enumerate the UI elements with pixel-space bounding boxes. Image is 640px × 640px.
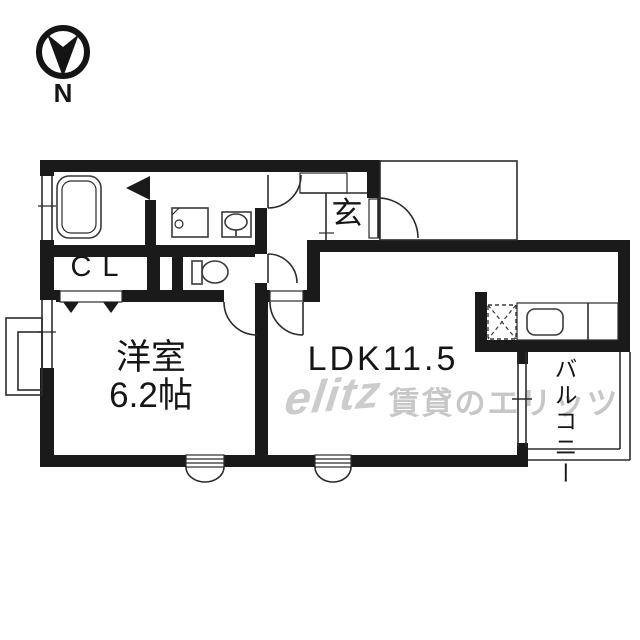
door-arc-toilet bbox=[268, 254, 297, 283]
western-room-name-label: 洋室 bbox=[75, 340, 227, 375]
door-arc-washroom bbox=[268, 175, 301, 208]
entrance-label: 玄 bbox=[328, 198, 366, 229]
closet-door-symbol bbox=[60, 291, 122, 313]
window-symbol-bottom-left bbox=[186, 455, 224, 482]
bath-door-symbol bbox=[126, 176, 150, 200]
washbasin-icon bbox=[222, 212, 251, 237]
door-arc-western-room bbox=[224, 302, 257, 335]
exterior-left-structure bbox=[6, 318, 42, 395]
door-arc-ldk bbox=[270, 291, 303, 335]
gas-stove-icon bbox=[488, 305, 516, 339]
porch-outline bbox=[380, 161, 517, 240]
floor-plan-drawing bbox=[0, 0, 640, 640]
closet-label: CL bbox=[58, 253, 142, 282]
window-symbol-bath bbox=[38, 176, 56, 240]
washing-machine-pan-icon bbox=[172, 208, 208, 237]
window-symbol-bottom-right bbox=[315, 455, 351, 482]
balcony-label: バルコニー bbox=[552, 357, 575, 461]
window-symbol-western-room bbox=[38, 300, 56, 368]
western-room-size-label: 6.2帖 bbox=[75, 378, 227, 413]
door-arc-entrance bbox=[369, 198, 418, 238]
bathtub-icon bbox=[57, 176, 101, 238]
floor-plan-page: elitz 賃貸のエリッツ bbox=[0, 0, 640, 640]
north-compass-icon bbox=[39, 28, 87, 77]
balcony-railing bbox=[528, 352, 630, 460]
balcony-sliding-window bbox=[512, 352, 532, 447]
compass-n-label: N bbox=[46, 80, 80, 106]
toilet-icon bbox=[192, 261, 228, 284]
shoe-cabinet bbox=[300, 173, 347, 193]
ldk-label: LDK11.5 bbox=[298, 342, 468, 376]
